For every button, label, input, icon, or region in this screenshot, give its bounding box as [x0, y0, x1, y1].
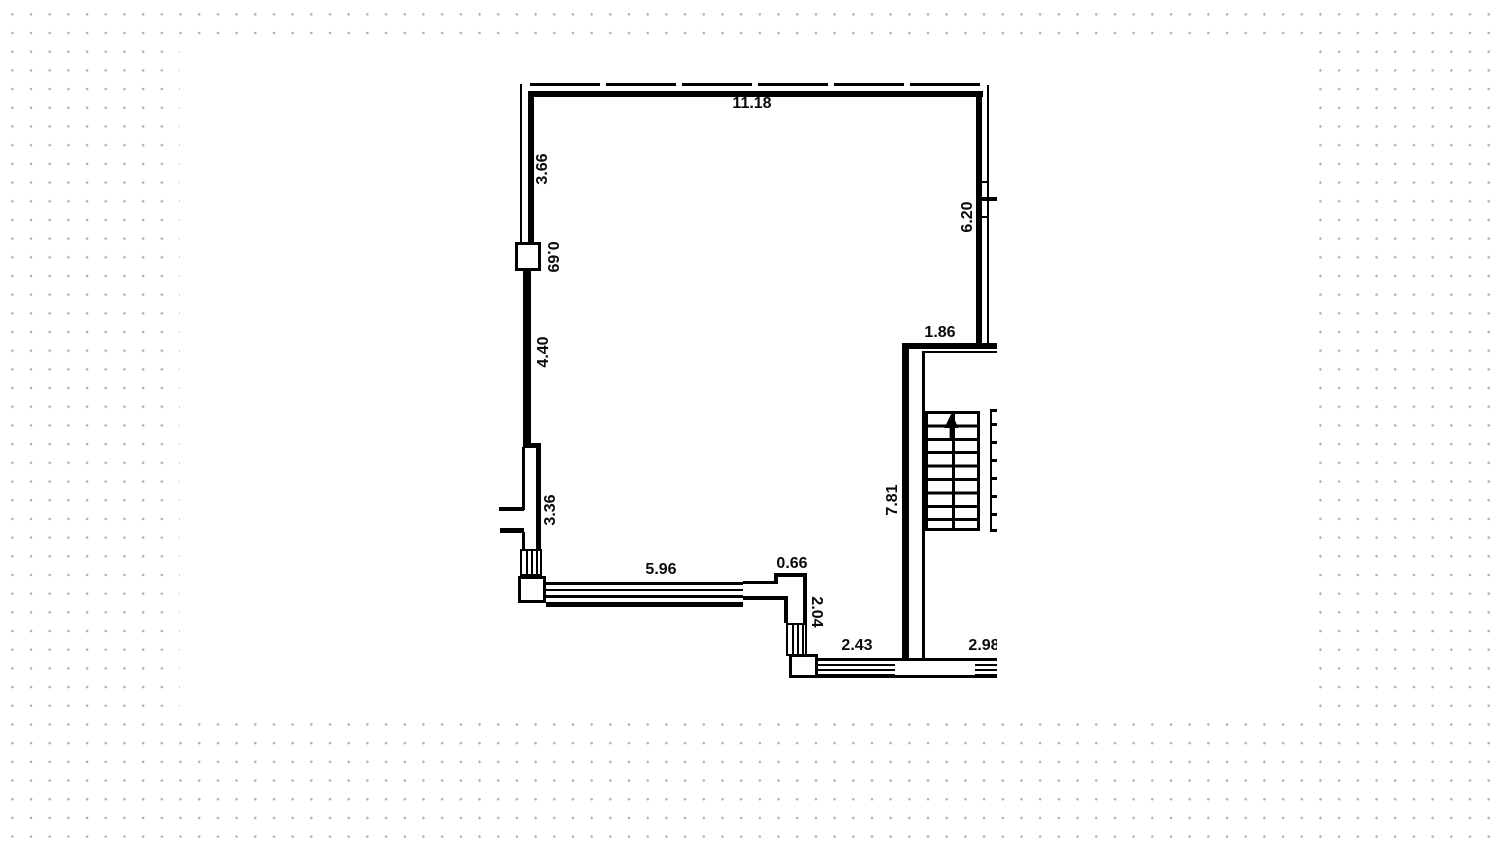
wall-bottom-stair — [895, 658, 975, 678]
left-wall-pillar — [515, 242, 541, 271]
window-band-596-line — [546, 589, 743, 592]
second-flight-tick — [990, 441, 998, 444]
second-flight-tick — [990, 477, 998, 480]
jog-wall-top-b — [774, 573, 806, 577]
window-band-298-line — [975, 674, 997, 678]
page: { "app": { "view": "floor-plan-drawing" … — [0, 0, 1500, 842]
window-mullion — [526, 551, 528, 574]
window-band-243-line — [818, 658, 895, 661]
window-band-298-line — [975, 669, 997, 671]
wall-stair-vertical — [902, 343, 909, 658]
jog-wall-inner — [784, 596, 788, 623]
window-band-243-line — [818, 674, 895, 678]
window-mullion — [536, 551, 538, 574]
window-band-596-line — [546, 595, 743, 598]
second-flight-tick — [990, 529, 998, 532]
second-flight-tick — [990, 409, 998, 412]
second-flight-tick — [990, 495, 998, 498]
stairs-up-arrow-icon — [941, 411, 962, 441]
dimension-bottom-window-right: 2.98 — [968, 638, 997, 654]
wall-left-outer — [520, 84, 523, 242]
wall-left-lower-outer — [522, 447, 525, 510]
dimension-left-wall-upper: 3.66 — [535, 153, 551, 184]
wall-left-below-door — [522, 532, 525, 549]
window-band-298-line — [975, 658, 997, 661]
dimension-right-wall: 6.20 — [960, 201, 976, 232]
second-flight-tick — [990, 459, 998, 462]
window-mullion — [797, 625, 799, 654]
window-mullion — [792, 625, 794, 654]
dimension-bottom-jog-height: 2.04 — [808, 596, 824, 627]
dimension-left-wall-pillar: 0.69 — [544, 241, 560, 272]
corner-pillar-bottom-middle — [789, 654, 818, 678]
right-window-tick-bottom — [976, 216, 989, 219]
door-opening-stub-top — [499, 507, 524, 511]
dimension-top-wall: 11.18 — [732, 96, 771, 112]
wall-top-outer-face — [530, 83, 982, 86]
dimension-left-wall-middle: 4.40 — [536, 336, 552, 367]
wall-right-outer — [987, 85, 990, 343]
door-opening-stub-bottom — [500, 528, 524, 533]
right-window-sill — [976, 197, 997, 201]
jog-wall-right — [803, 573, 807, 623]
wall-left-middle — [523, 271, 531, 447]
window-mullion — [802, 625, 804, 654]
right-window-tick-top — [976, 181, 989, 184]
window-band-298-line — [975, 664, 997, 666]
wall-stair-landing — [902, 343, 997, 349]
wall-left-lower-inner — [536, 447, 541, 549]
second-flight-tick — [990, 513, 998, 516]
dimension-bottom-window-middle: 2.43 — [841, 638, 872, 654]
window-left-wall — [520, 549, 542, 576]
window-band-243-line — [818, 664, 895, 666]
floor-plan: 11.18 3.66 0.69 4.40 3.36 6.20 1.86 7.81… — [0, 0, 997, 842]
second-flight-tick — [990, 423, 998, 426]
jog-wall-top-a — [743, 581, 777, 584]
dimension-stair-landing: 1.86 — [924, 325, 955, 341]
dimension-stair-wall: 7.81 — [885, 484, 901, 515]
window-band-596-line — [546, 582, 743, 585]
dimension-bottom-jog-width: 0.66 — [776, 556, 807, 572]
corner-pillar-bottom-left — [518, 576, 546, 603]
dimension-bottom-window-left: 5.96 — [645, 562, 676, 578]
window-mullion — [531, 551, 533, 574]
window-jog-wall — [786, 623, 807, 656]
window-band-243-line — [818, 669, 895, 671]
jog-wall-bottom — [743, 596, 788, 600]
window-band-596-line — [546, 602, 743, 607]
dimension-left-wall-lower: 3.36 — [543, 494, 559, 525]
stair-landing-inner-line — [922, 351, 997, 354]
